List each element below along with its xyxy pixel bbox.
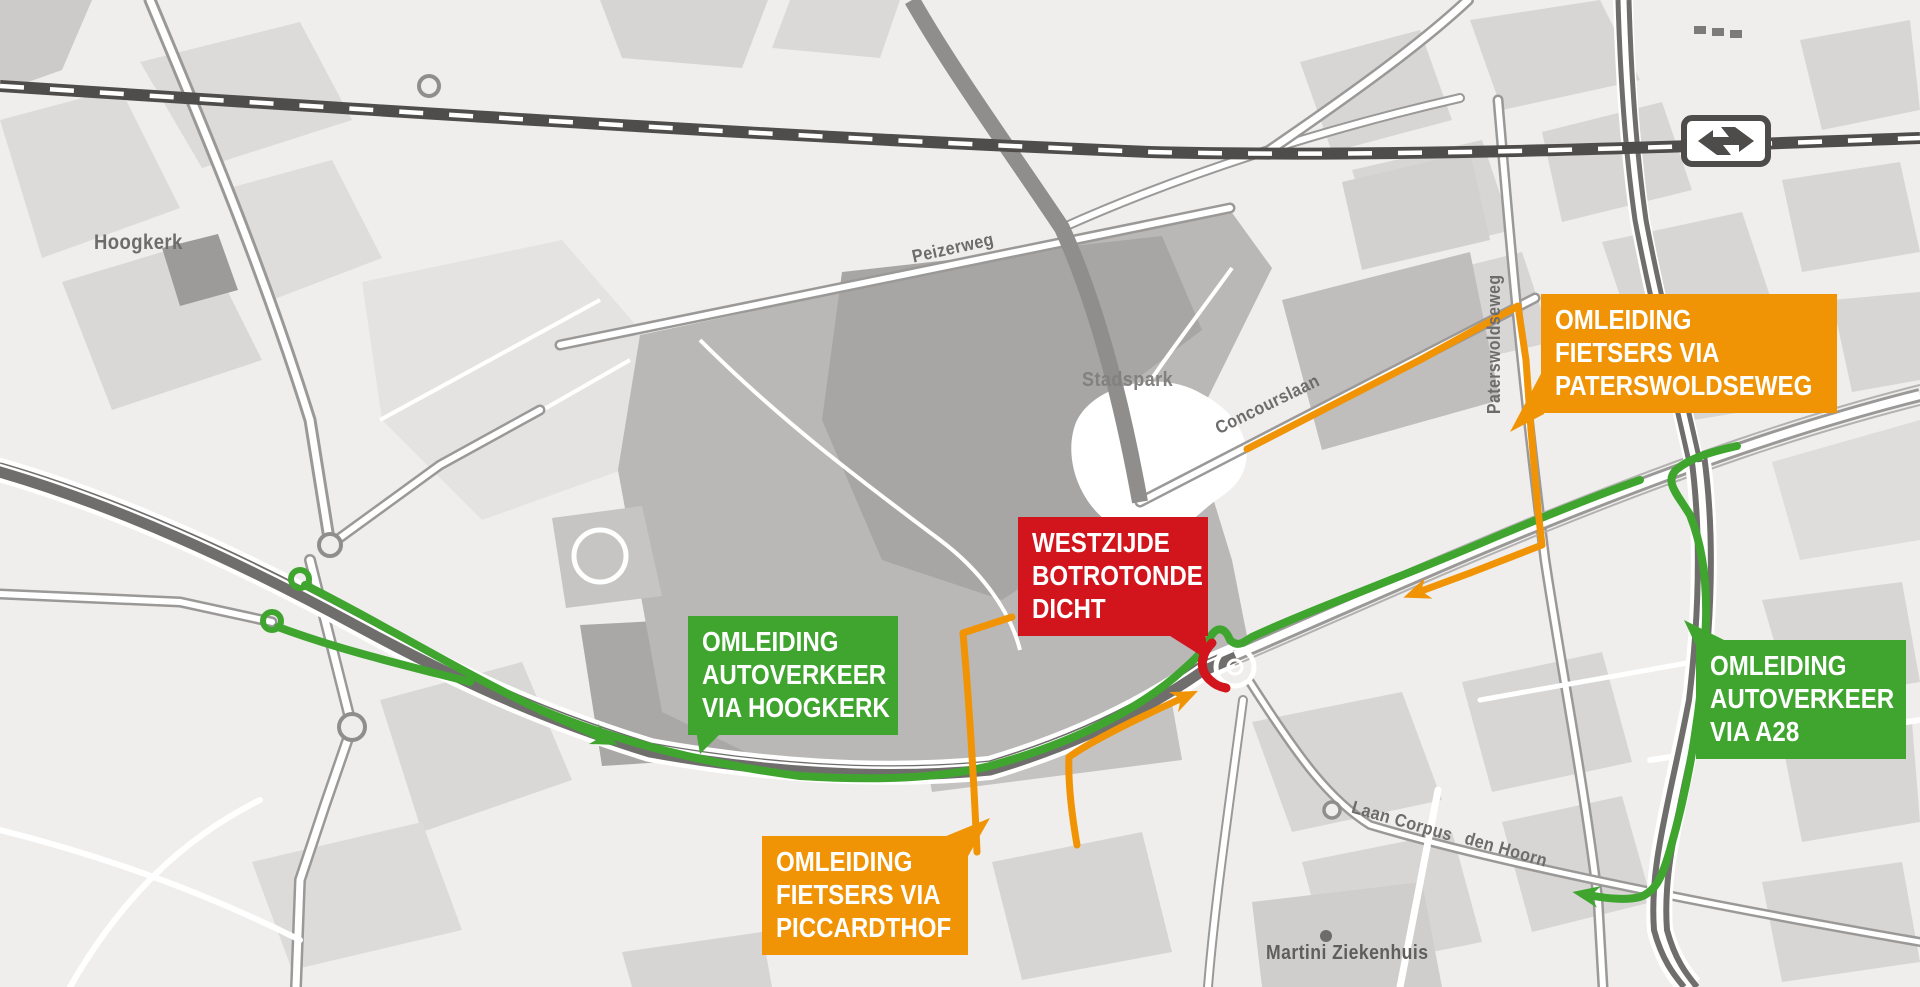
- callout-line: OMLEIDING: [776, 845, 929, 878]
- ns-logo-icon: [1684, 118, 1768, 164]
- label-hoogkerk: Hoogkerk: [94, 231, 183, 255]
- callout-line: OMLEIDING: [1555, 303, 1785, 336]
- callout-fietsers-piccardthof: OMLEIDING FIETSERS VIA PICCARDTHOF: [762, 836, 968, 955]
- callout-autoverkeer-hoogkerk: OMLEIDING AUTOVERKEER VIA HOOGKERK: [688, 616, 898, 735]
- label-paterswoldseweg: Paterswoldseweg: [1484, 274, 1505, 414]
- callout-line: PATERSWOLDSEWEG: [1555, 369, 1785, 402]
- callout-westzijde-botrotonde-dicht: WESTZIJDE BOTROTONDE DICHT: [1018, 517, 1208, 636]
- callout-line: OMLEIDING: [1710, 649, 1867, 682]
- callout-line: AUTOVERKEER: [702, 658, 859, 691]
- martini-poi-dot: [1320, 930, 1332, 942]
- label-martini-ziekenhuis: Martini Ziekenhuis: [1266, 942, 1428, 965]
- callout-line: PICCARDTHOF: [776, 911, 929, 944]
- callout-line: VIA A28: [1710, 715, 1867, 748]
- callout-autoverkeer-a28: OMLEIDING AUTOVERKEER VIA A28: [1696, 640, 1906, 759]
- label-stadspark: Stadspark: [1082, 369, 1173, 392]
- detour-map: Hoogkerk Peizerweg Stadspark Concourslaa…: [0, 0, 1920, 987]
- callout-line: AUTOVERKEER: [1710, 682, 1867, 715]
- callout-line: VIA HOOGKERK: [702, 691, 859, 724]
- callout-line: FIETSERS VIA: [1555, 336, 1785, 369]
- callout-fietsers-paterswoldseweg: OMLEIDING FIETSERS VIA PATERSWOLDSEWEG: [1541, 294, 1837, 413]
- callout-line: WESTZIJDE: [1032, 526, 1171, 559]
- callout-line: DICHT: [1032, 592, 1171, 625]
- callout-line: BOTROTONDE: [1032, 559, 1171, 592]
- callout-line: OMLEIDING: [702, 625, 859, 658]
- callout-line: FIETSERS VIA: [776, 878, 929, 911]
